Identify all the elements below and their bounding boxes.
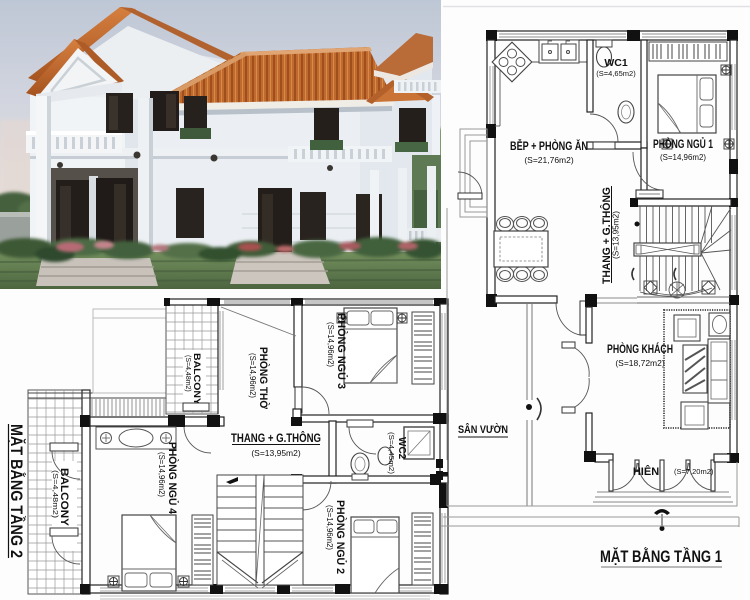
svg-text:(S=14,96m2): (S=14,96m2) <box>326 322 335 367</box>
svg-text:(S=18,72m2): (S=18,72m2) <box>615 358 665 368</box>
svg-text:(S=21,76m2): (S=21,76m2) <box>524 155 574 165</box>
svg-text:(S=14,96m2): (S=14,96m2) <box>248 353 257 398</box>
svg-text:(S=4,65m2): (S=4,65m2) <box>596 69 636 78</box>
svg-text:(S=13,95m2): (S=13,95m2) <box>612 211 621 259</box>
svg-text:MẶT BẰNG TẦNG 2: MẶT BẰNG TẦNG 2 <box>7 424 26 558</box>
svg-text:WC1: WC1 <box>604 57 627 69</box>
svg-text:PHÒNG NGỦ 1: PHÒNG NGỦ 1 <box>653 138 713 151</box>
svg-text:(S=14,96m2): (S=14,96m2) <box>325 505 334 550</box>
svg-text:(S=7,20m2): (S=7,20m2) <box>674 467 714 476</box>
svg-text:BALCONY: BALCONY <box>191 353 202 406</box>
svg-text:(S=4,48m2): (S=4,48m2) <box>51 470 60 519</box>
svg-text:PHÒNG NGỦ 4: PHÒNG NGỦ 4 <box>166 442 179 515</box>
svg-text:SÂN VƯỜN: SÂN VƯỜN <box>458 423 508 436</box>
svg-text:PHÒNG THỜ: PHÒNG THỜ <box>257 347 270 410</box>
svg-text:PHÒNG KHÁCH: PHÒNG KHÁCH <box>607 343 673 356</box>
svg-text:MẶT BẰNG TẦNG 1: MẶT BẰNG TẦNG 1 <box>600 547 722 566</box>
svg-text:(S=14,96m2): (S=14,96m2) <box>660 152 706 162</box>
svg-text:PHÒNG NGỦ 2: PHÒNG NGỦ 2 <box>334 500 347 574</box>
svg-text:HIÊN: HIÊN <box>633 465 659 478</box>
svg-text:(S=4,48m2): (S=4,48m2) <box>184 355 191 392</box>
svg-text:(S=14,96m2): (S=14,96m2) <box>157 452 166 497</box>
svg-text:(S=13,95m2): (S=13,95m2) <box>251 448 301 458</box>
svg-text:(S=4,45m2): (S=4,45m2) <box>387 432 394 474</box>
svg-text:THANG + G.THÔNG: THANG + G.THÔNG <box>231 432 321 445</box>
svg-text:BỄP + PHÒNG ĂN: BỄP + PHÒNG ĂN <box>510 140 588 153</box>
svg-text:WC2: WC2 <box>396 437 407 460</box>
svg-text:PHÒNG NGỦ 3: PHÒNG NGỦ 3 <box>335 313 348 389</box>
